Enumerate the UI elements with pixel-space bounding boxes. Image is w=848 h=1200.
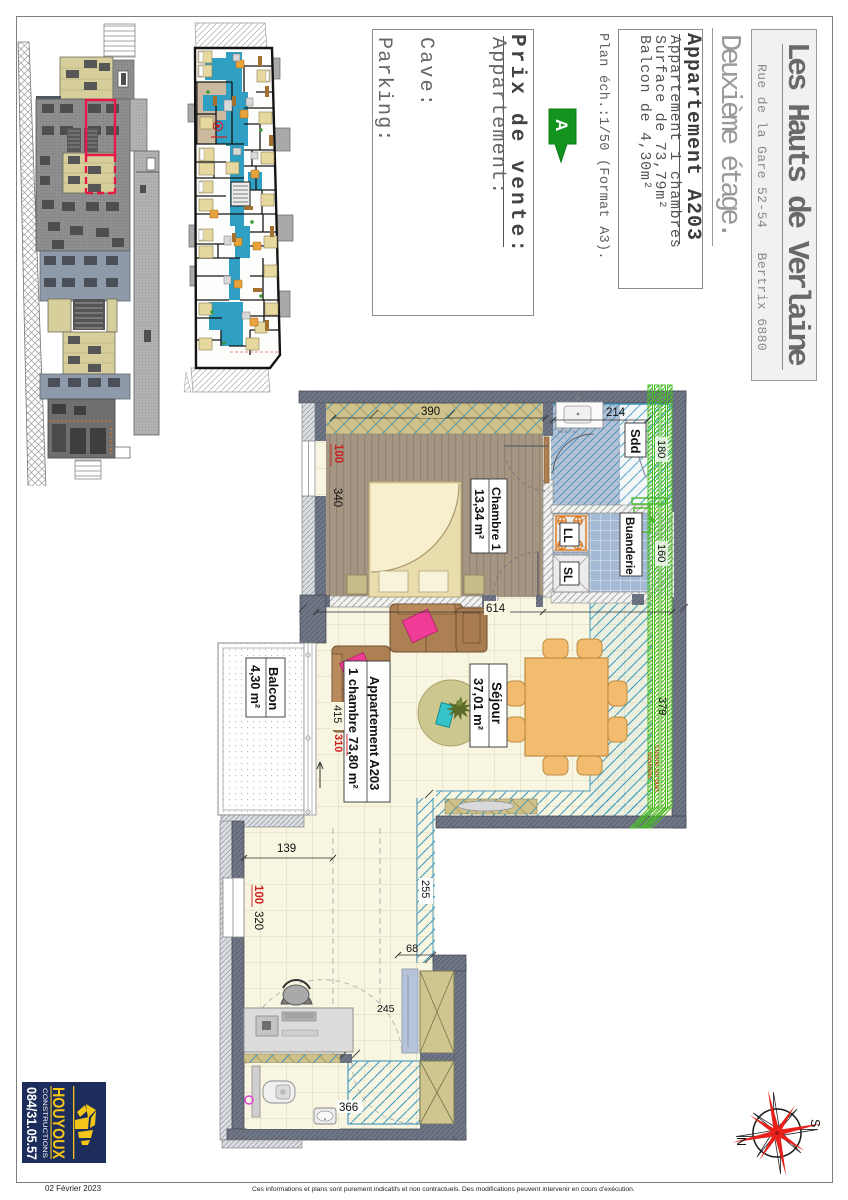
svg-text:S: S (808, 1119, 822, 1127)
svg-text:N: N (734, 1137, 748, 1146)
svg-text:4,30 m²: 4,30 m² (248, 665, 262, 708)
svg-text:Balcon: Balcon (266, 667, 281, 710)
svg-text:1 chambre 73,80 m²: 1 chambre 73,80 m² (346, 668, 361, 789)
svg-text:LL: LL (561, 528, 575, 543)
svg-text:Séjour: Séjour (489, 682, 504, 725)
svg-text:255: 255 (419, 880, 431, 898)
svg-text:160: 160 (655, 544, 667, 562)
svg-text:614: 614 (486, 603, 506, 615)
svg-text:139: 139 (277, 843, 296, 855)
svg-text:CONSTRUCTIONS: CONSTRUCTIONS (41, 1088, 48, 1159)
svg-text:cuisiniste: cuisiniste (646, 752, 653, 779)
svg-text:180: 180 (655, 440, 667, 458)
svg-text:HOUYOUX: HOUYOUX (49, 1087, 68, 1160)
svg-text:Sdd: Sdd (628, 429, 643, 454)
svg-text:37,01 m²: 37,01 m² (471, 678, 486, 731)
svg-text:80x45,7 cm: 80x45,7 cm (558, 430, 577, 434)
svg-text:SL: SL (561, 567, 575, 582)
svg-text:Chambre 1: Chambre 1 (489, 487, 503, 551)
svg-text:379: 379 (656, 697, 668, 715)
svg-text:Cuisine sur plan: Cuisine sur plan (653, 745, 660, 792)
svg-text:100: 100 (332, 444, 344, 463)
svg-text:320: 320 (252, 911, 264, 930)
svg-text:366: 366 (339, 1102, 358, 1114)
svg-text:13,34 m²: 13,34 m² (472, 489, 486, 539)
svg-text:A: A (552, 119, 571, 131)
svg-text:415: 415 (331, 705, 343, 723)
svg-text:Buanderie: Buanderie (623, 517, 637, 575)
svg-text:084/31.05.57: 084/31.05.57 (24, 1087, 40, 1160)
svg-text:214: 214 (606, 407, 626, 419)
svg-text:68: 68 (406, 943, 418, 955)
svg-text:340: 340 (331, 488, 343, 507)
svg-text:390: 390 (421, 406, 440, 418)
svg-text:100: 100 (252, 885, 264, 904)
svg-text:245: 245 (377, 1003, 395, 1015)
svg-text:Appartement A203: Appartement A203 (367, 676, 382, 790)
svg-text:310: 310 (332, 734, 344, 752)
